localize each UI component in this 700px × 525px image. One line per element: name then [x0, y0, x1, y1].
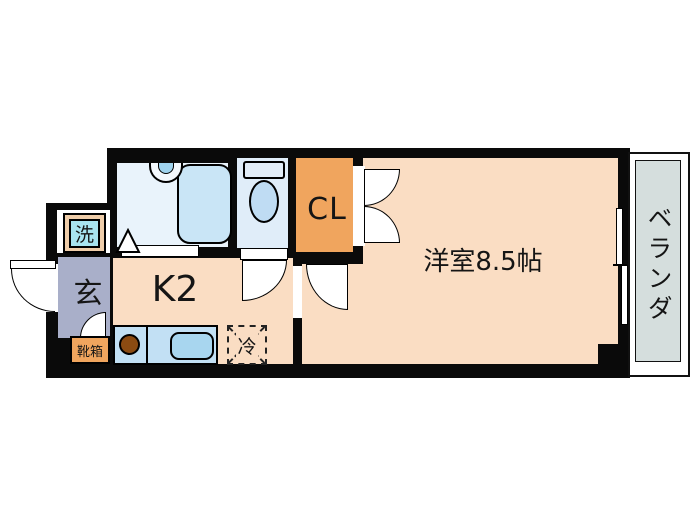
bathroom-door-icon: [114, 228, 142, 254]
balcony-label: ベランダ: [640, 185, 676, 345]
shoe-box: 靴箱: [70, 336, 110, 364]
entry-door-swing-arc: [11, 269, 55, 312]
floorplan: ベランダ 洗 靴箱 冷: [0, 0, 700, 525]
kitchen-sink-icon: [170, 332, 214, 360]
entrance-label: 玄: [70, 274, 106, 308]
bathtub: [177, 164, 232, 244]
closet-label: CL: [301, 192, 353, 226]
toilet-door-panel: [240, 248, 288, 260]
kitchen-label: K2: [135, 268, 215, 310]
balcony-window-tick: [613, 264, 627, 266]
shoe-box-label: 靴箱: [77, 341, 103, 360]
toilet-tank-icon: [243, 161, 285, 179]
refrigerator-label-wrap: 冷: [229, 327, 265, 363]
balcony-window-panel-top: [616, 208, 623, 266]
laundry-label: 洗: [75, 220, 94, 247]
balcony-window-panel-bottom: [621, 265, 628, 325]
toilet-bowl-icon: [249, 180, 279, 223]
entry-door-panel: [10, 260, 56, 269]
kitchen-counter-divider: [146, 325, 148, 365]
laundry-machine: 洗: [69, 219, 100, 248]
western-room-label: 洋室8.5帖: [403, 244, 563, 274]
stove-burner-icon: [119, 334, 140, 355]
refrigerator-label: 冷: [236, 332, 257, 359]
kitchen-room-door-opening: [293, 266, 302, 318]
corner-pillar: [598, 344, 630, 378]
refrigerator-box: 冷: [227, 325, 267, 365]
